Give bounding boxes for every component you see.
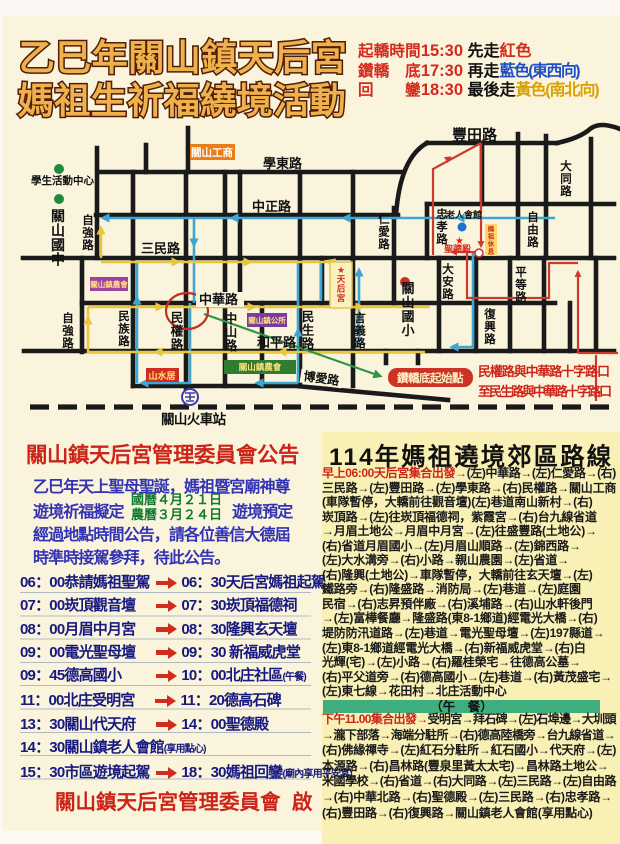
svg-text:關山鎮農會: 關山鎮農會 xyxy=(239,362,282,372)
svg-text:三民路: 三民路 xyxy=(141,241,181,256)
svg-text:民族路: 民族路 xyxy=(118,310,130,348)
svg-text:和平路: 和平路 xyxy=(257,335,297,350)
svg-text:民權路: 民權路 xyxy=(171,311,184,352)
svg-text:乙巳年關山鎮天后宮: 乙巳年關山鎮天后宮 xyxy=(19,37,348,78)
svg-text:山水居: 山水居 xyxy=(148,370,175,381)
svg-text:天后宮: 天后宮 xyxy=(337,274,346,303)
svg-text:平等路: 平等路 xyxy=(514,266,527,304)
svg-text:關山鎮公所: 關山鎮公所 xyxy=(248,315,286,325)
svg-text:關山火車站: 關山火車站 xyxy=(161,411,227,427)
svg-text:中華路: 中華路 xyxy=(199,292,239,307)
svg-text:復興路: 復興路 xyxy=(483,307,496,346)
svg-text:關山國中: 關山國中 xyxy=(51,208,65,268)
svg-text:言義路: 言義路 xyxy=(354,311,366,350)
svg-text:自由路: 自由路 xyxy=(527,210,539,249)
svg-text:關山工商: 關山工商 xyxy=(191,146,233,159)
svg-text:自強路: 自強路 xyxy=(62,311,74,350)
svg-text:中正路: 中正路 xyxy=(252,199,292,214)
svg-text:關山鎮農會: 關山鎮農會 xyxy=(90,279,128,289)
svg-text:學生活動中心: 學生活動中心 xyxy=(31,174,94,187)
svg-text:媽祖生祈福繞境活動: 媽祖生祈福繞境活動 xyxy=(18,80,347,121)
svg-text:自強路: 自強路 xyxy=(82,213,94,252)
svg-text:大安路: 大安路 xyxy=(442,262,454,301)
svg-text:老人會館: 老人會館 xyxy=(445,209,482,220)
svg-text:媽祖休息: 媽祖休息 xyxy=(487,224,495,256)
svg-text:豐田路: 豐田路 xyxy=(452,126,498,144)
svg-text:民權路與中華路十字路口: 民權路與中華路十字路口 xyxy=(478,364,609,379)
svg-text:關山國小: 關山國小 xyxy=(401,281,414,338)
svg-text:中山路: 中山路 xyxy=(225,311,238,353)
svg-text:至民生路與中華路十字路口: 至民生路與中華路十字路口 xyxy=(478,384,611,399)
svg-text:學東路: 學東路 xyxy=(263,156,303,171)
svg-text:聖德殿: 聖德殿 xyxy=(444,243,472,254)
svg-text:大同路: 大同路 xyxy=(560,159,572,198)
svg-text:民生路: 民生路 xyxy=(302,310,315,351)
svg-text:鑽轎底起始點: 鑽轎底起始點 xyxy=(397,371,464,385)
svg-text:仁愛路: 仁愛路 xyxy=(378,212,390,251)
